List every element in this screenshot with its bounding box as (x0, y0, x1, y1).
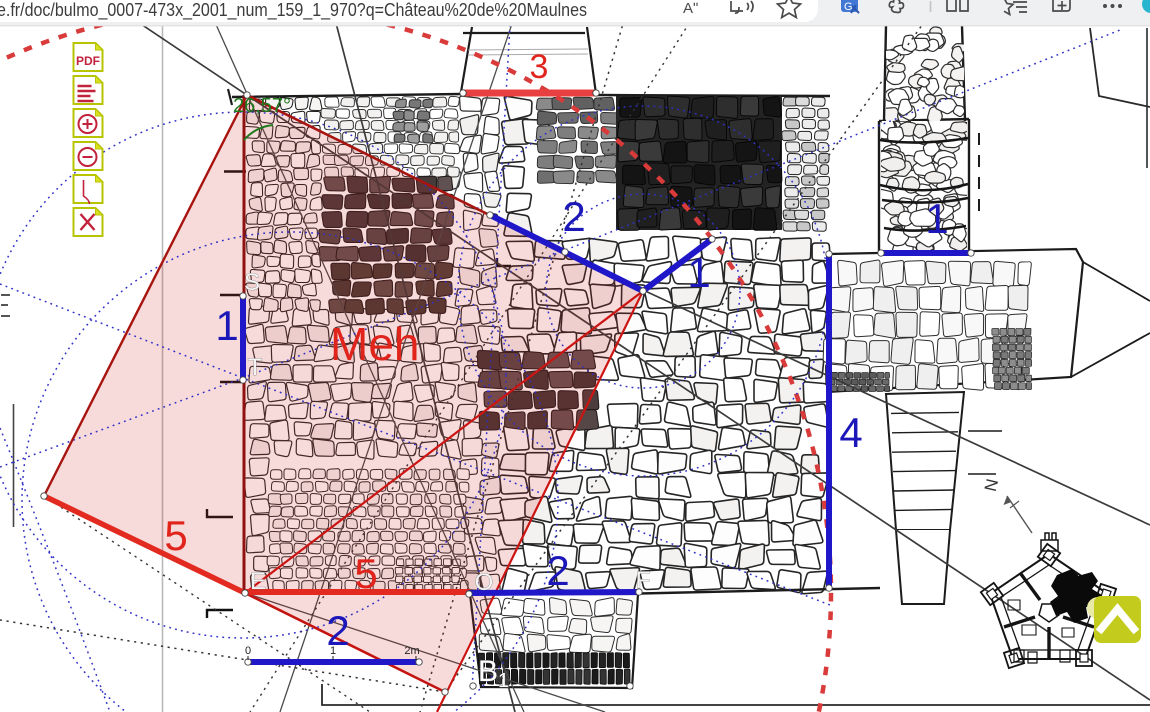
svg-text:1: 1 (925, 195, 948, 242)
svg-text:T: T (248, 354, 263, 381)
svg-text:F: F (636, 567, 651, 594)
svg-text:2: 2 (562, 193, 585, 240)
svg-text:Aʺ: Aʺ (683, 0, 698, 17)
svg-text:1: 1 (215, 302, 238, 349)
svg-text:E: E (250, 568, 266, 595)
svg-text:1: 1 (687, 249, 710, 296)
svg-text:2m: 2m (404, 645, 419, 657)
svg-text:Meh: Meh (330, 318, 419, 370)
svg-text:PDF: PDF (76, 54, 100, 68)
svg-text:5: 5 (164, 512, 187, 559)
svg-text:3: 3 (530, 48, 549, 86)
svg-text:1: 1 (330, 645, 336, 657)
svg-text:4: 4 (839, 409, 862, 456)
svg-text:5: 5 (354, 550, 377, 597)
svg-text:O: O (475, 569, 494, 596)
svg-text:e.fr/doc/bulmo_0007-473x_2001_: e.fr/doc/bulmo_0007-473x_2001_num_159_1_… (0, 0, 587, 21)
svg-text:0: 0 (245, 645, 251, 657)
svg-text:2: 2 (546, 547, 569, 594)
svg-text:26,57°: 26,57° (233, 95, 291, 117)
svg-text:S: S (244, 269, 260, 296)
